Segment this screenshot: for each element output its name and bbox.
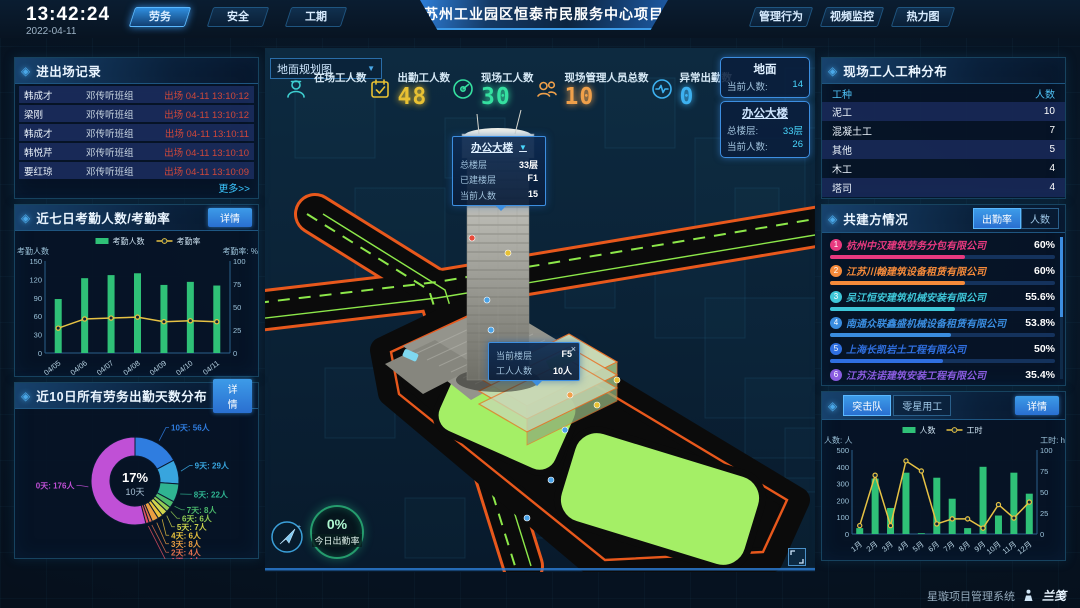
brand-logo: 兰笺 [1042,587,1066,604]
svg-text:10天: 10天 [125,487,144,497]
svg-text:5天: 7人: 5天: 7人 [177,522,208,532]
svg-text:04/05: 04/05 [42,358,62,377]
exit-event: 出场 04-11 13:10:09 [164,164,249,178]
today-attendance-gauge: 0% 今日出勤率 [310,505,364,559]
gauge-icon [450,76,476,109]
squad-tab-1[interactable]: 突击队 [843,395,891,416]
tab-label: 热力图 [894,7,952,27]
people-icon [534,76,560,109]
svg-text:0: 0 [38,349,42,358]
partner-row[interactable]: 6江苏法诺建筑安装工程有限公司35.4% [830,367,1055,386]
tooltip-row: 总楼层33层 [460,158,538,171]
panel-days-distribution: ◈ 近10日所有劳务出勤天数分布 详情 10天: 56人9天: 29人8天: 2… [14,382,259,559]
svg-text:120: 120 [29,275,42,284]
rank-badge: 4 [830,317,842,329]
worker-table-header: 工种人数 [822,84,1065,102]
worker-name: 要红琼 [24,164,86,178]
tab-right-3[interactable]: 热力图 [894,7,952,27]
detail-button[interactable]: 详情 [1015,396,1059,415]
worker-name: 韩成才 [24,126,86,140]
svg-text:2月: 2月 [865,539,880,553]
stat-label: 现场工人数 [481,70,534,85]
svg-text:4月: 4月 [895,539,910,553]
tooltip-row: 已建楼层F1 [460,173,538,186]
stat-value: 30 [481,85,534,109]
svg-text:8天: 22人: 8天: 22人 [194,489,229,499]
svg-text:考勤人数: 考勤人数 [17,246,49,256]
partner-row[interactable]: 2江苏川翰建筑设备租赁有限公司60% [830,263,1055,285]
footer: 星璇项目管理系统 兰笺 [927,587,1066,604]
tooltip-row: 当前人数15 [460,189,538,202]
svg-text:1月: 1月 [849,539,864,553]
detail-button[interactable]: 详情 [208,208,252,227]
entry-exit-row: 韩成才邓传听班组出场 04-11 13:10:11 [19,124,254,141]
team-name: 邓传听班组 [86,107,164,121]
worker-type-row: 其他5 [822,140,1065,159]
team-name: 邓传听班组 [86,164,164,178]
svg-text:0: 0 [1040,530,1044,539]
svg-text:工时: h: 工时: h [1040,435,1065,445]
svg-text:60: 60 [34,312,42,321]
area-panel-row: 当前人数:26 [727,139,803,153]
pulse-icon [649,76,675,109]
stats-row: 在场工人数出勤工人数48现场工人数30现场管理人员总数10异常出勤数0 [283,70,715,109]
worker-count: 4 [995,163,1055,174]
svg-text:04/10: 04/10 [174,358,194,377]
svg-text:150: 150 [29,257,42,266]
team-name: 邓传听班组 [86,126,165,140]
progress-fill [830,307,955,311]
diamond-icon: ◈ [828,399,837,413]
stat-gauge: 现场工人数30 [450,70,534,109]
diamond-icon: ◈ [828,64,837,78]
panel-title: 进出场记录 [36,61,101,80]
panel-worker-types: ◈ 现场工人工种分布 工种人数 泥工10混凝土工7其他5木工4塔司4 [821,57,1066,199]
svg-text:10天: 56人: 10天: 56人 [171,422,211,432]
days-distribution-donut: 10天: 56人9天: 29人8天: 22人7天: 8人6天: 6人5天: 7人… [15,409,260,559]
building-tooltip: 办公大楼▼ 总楼层33层已建楼层F1当前人数15 [452,136,546,206]
area-panel-row: 总楼层:33层 [727,123,803,137]
svg-text:考勤人数: 考勤人数 [113,236,145,246]
gauge-label: 今日出勤率 [312,534,362,547]
svg-text:50: 50 [1040,488,1048,497]
calendar-icon [367,76,393,109]
partner-name: 江苏法诺建筑安装工程有限公司 [846,367,1017,382]
worker-name: 韩悦芹 [24,145,86,159]
exit-event: 出场 04-11 13:10:12 [164,107,249,121]
svg-text:100: 100 [1040,446,1053,455]
compass-icon[interactable]: + [268,518,306,556]
svg-text:工时: 工时 [967,425,983,435]
area-panel-title: 地面 [727,61,803,77]
worker-count: 5 [995,144,1055,155]
partner-row[interactable]: 1杭州中汉建筑劳务分包有限公司60% [830,237,1055,259]
svg-text:17%: 17% [122,470,148,485]
svg-text:1天: 4人: 1天: 4人 [171,556,202,559]
stat-people: 现场管理人员总数10 [534,70,649,109]
squad-tab-2[interactable]: 零星用工 [893,395,951,416]
brand-icon [1023,589,1034,602]
partner-tabs: 出勤率人数 [973,208,1059,229]
panel-squad: ◈ 突击队零星用工 详情 01002003004005000255075100人… [821,391,1066,561]
page-title: 苏州工业园区恒泰市民服务中心项目 [420,0,668,30]
worker-type: 混凝土工 [832,123,995,138]
partner-percent: 53.8% [1025,317,1055,329]
tab-label: 安全 [210,7,266,27]
svg-text:0: 0 [233,349,237,358]
panel-partners: ◈ 共建方情况 出勤率人数 1杭州中汉建筑劳务分包有限公司60%2江苏川翰建筑设… [821,204,1066,386]
worker-type-row: 混凝土工7 [822,121,1065,140]
entry-exit-list: 韩成才邓传听班组出场 04-11 13:10:12梁刚邓传听班组出场 04-11… [15,86,258,179]
svg-text:6天: 6人: 6天: 6人 [182,513,213,523]
system-name: 星璇项目管理系统 [927,588,1015,604]
team-name: 邓传听班组 [86,88,164,102]
tooltip-row: 当前楼层F5 [496,349,572,362]
svg-text:04/09: 04/09 [148,358,168,377]
svg-text:人数: 人: 人数: 人 [824,435,852,445]
svg-text:4天: 6人: 4天: 6人 [171,530,202,540]
gauge-value: 0% [312,516,362,532]
partner-percent: 35.4% [1025,369,1055,381]
panel-title: 共建方情况 [843,209,908,228]
rank-badge: 6 [830,369,842,381]
svg-text:75: 75 [233,280,241,289]
progress-track [830,333,1055,337]
partner-percent: 60% [1034,265,1055,277]
entry-exit-row: 韩悦芹邓传听班组出场 04-11 13:10:10 [19,143,254,160]
stat-label: 出勤工人数 [398,70,451,85]
panel-attendance7: ◈ 近七日考勤人数/考勤率 详情 03060901201500255075100… [14,204,259,377]
partner-percent: 55.6% [1025,291,1055,303]
svg-text:8月: 8月 [957,539,972,553]
team-name: 邓传听班组 [86,145,164,159]
rank-badge: 2 [830,265,842,277]
svg-text:+: + [297,524,301,531]
exit-event: 出场 04-11 13:10:11 [165,126,249,140]
progress-fill [830,281,965,285]
partner-row[interactable]: 5上海长凯岩土工程有限公司50% [830,341,1055,363]
rank-badge: 3 [830,291,842,303]
floor-tooltip: × 当前楼层F5工人人数10人 [488,342,580,381]
squad-chart: 01002003004005000255075100人数: 人工时: h人数工时… [822,420,1067,558]
svg-text:9月: 9月 [973,539,988,553]
svg-text:100: 100 [233,257,246,266]
tab-label: 管理行为 [752,7,810,27]
diamond-icon: ◈ [828,212,837,226]
partner-percent: 60% [1034,239,1055,251]
clock: 13:42:24 2022-04-11 [26,4,110,37]
close-icon[interactable]: × [571,345,576,354]
svg-text:5月: 5月 [911,539,926,553]
topbar: 13:42:24 2022-04-11 劳务安全工期 苏州工业园区恒泰市民服务中… [0,0,1080,38]
svg-text:25: 25 [233,326,241,335]
svg-text:04/07: 04/07 [95,358,115,377]
dashboard-root: 13:42:24 2022-04-11 劳务安全工期 苏州工业园区恒泰市民服务中… [0,0,1080,608]
svg-text:11月: 11月 [1001,539,1019,556]
attendance-chart: 03060901201500255075100考勤人数考勤率: %考勤人数考勤率… [15,231,260,377]
partner-row[interactable]: 3吴江恒安建筑机械安装有限公司55.6% [830,289,1055,311]
rank-badge: 1 [830,239,842,251]
svg-text:100: 100 [836,513,849,522]
svg-text:90: 90 [34,294,42,303]
stat-label: 在场工人数 [314,70,367,85]
worker-type-row: 木工4 [822,159,1065,178]
progress-track [830,307,1055,311]
worker-count: 10 [995,106,1055,117]
svg-text:12月: 12月 [1015,539,1033,556]
chevron-down-icon: ▼ [519,143,527,152]
svg-text:300: 300 [836,480,849,489]
worker-count: 7 [995,125,1055,136]
svg-text:25: 25 [1040,509,1048,518]
stat-calendar: 出勤工人数48 [367,70,451,109]
panel-title: 现场工人工种分布 [843,61,947,80]
exit-event: 出场 04-11 13:10:12 [164,88,249,102]
scrollbar[interactable] [1060,237,1063,379]
worker-type-row: 塔司4 [822,178,1065,197]
detail-button[interactable]: 详情 [213,379,252,413]
svg-text:7天: 8人: 7天: 8人 [187,505,218,515]
tab-label: 劳务 [132,7,188,27]
entry-exit-row: 梁刚邓传听班组出场 04-11 13:10:12 [19,105,254,122]
entry-exit-row: 韩成才邓传听班组出场 04-11 13:10:12 [19,86,254,103]
worker-count: 4 [995,182,1055,193]
worker-type: 其他 [832,142,995,157]
squad-tabs: 突击队零星用工 [843,395,951,416]
area-panel-title[interactable]: 办公大楼 [727,105,803,121]
tab-right-1[interactable]: 管理行为 [752,7,810,27]
worker-table: 泥工10混凝土工7其他5木工4塔司4 [822,102,1065,197]
partner-name: 江苏川翰建筑设备租赁有限公司 [846,263,1026,278]
progress-track [830,281,1055,285]
diamond-icon: ◈ [21,211,30,225]
diamond-icon: ◈ [21,389,30,403]
progress-track [830,255,1055,259]
progress-track [830,359,1055,363]
progress-fill [830,359,943,363]
partner-name: 吴江恒安建筑机械安装有限公司 [846,289,1017,304]
worker-type: 木工 [832,161,995,176]
diamond-icon: ◈ [21,64,30,78]
panel-entry-exit: ◈ 进出场记录 韩成才邓传听班组出场 04-11 13:10:12梁刚邓传听班组… [14,57,259,199]
tab-label: 工期 [288,7,344,27]
progress-fill [830,255,965,259]
svg-text:50: 50 [233,303,241,312]
partner-name: 南通众联鑫盛机械设备租赁有限公司 [846,315,1017,330]
svg-text:400: 400 [836,463,849,472]
partner-percent: 50% [1034,343,1055,355]
svg-text:6月: 6月 [926,539,941,553]
progress-fill [830,333,951,337]
progress-fill [830,385,910,386]
svg-text:500: 500 [836,446,849,455]
svg-text:人数: 人数 [920,425,936,435]
area-panel-ground: 地面当前人数:14 [720,57,810,98]
svg-text:2天: 4人: 2天: 4人 [171,547,202,557]
building-tooltip-title[interactable]: 办公大楼▼ [460,140,538,155]
svg-text:9天: 29人: 9天: 29人 [195,461,230,471]
worker-name: 梁刚 [24,107,86,121]
svg-text:3天: 8人: 3天: 8人 [171,539,202,549]
tooltip-row: 工人人数10人 [496,364,572,377]
svg-text:30: 30 [34,331,42,340]
more-link[interactable]: 更多>> [218,180,250,195]
partner-tab-1[interactable]: 出勤率 [973,208,1021,229]
stat-value: 48 [398,85,451,109]
area-panel-row: 当前人数:14 [727,79,803,93]
tab-label: 视频监控 [823,7,881,27]
tab-left-1[interactable]: 劳务 [132,7,188,27]
clock-date: 2022-04-11 [26,26,110,37]
svg-text:04/11: 04/11 [201,358,221,376]
worker-name: 韩成才 [24,88,86,102]
worker-type-row: 泥工10 [822,102,1065,121]
partner-name: 上海长凯岩土工程有限公司 [846,341,1026,356]
progress-track [830,385,1055,386]
svg-text:7月: 7月 [942,539,957,553]
panel-title: 近10日所有劳务出勤天数分布 [36,386,207,405]
svg-text:考勤率: 考勤率 [177,236,201,246]
partner-list: 1杭州中汉建筑劳务分包有限公司60%2江苏川翰建筑设备租赁有限公司60%3吴江恒… [822,237,1065,386]
fullscreen-icon[interactable] [788,548,806,566]
clock-time: 13:42:24 [26,4,110,26]
worker-type: 塔司 [832,180,995,195]
area-panel-building: 办公大楼总楼层:33层当前人数:26 [720,101,810,158]
svg-text:0天: 176人: 0天: 176人 [36,480,76,490]
svg-text:04/06: 04/06 [69,358,89,377]
svg-text:考勤率: %: 考勤率: % [222,246,258,256]
svg-text:04/08: 04/08 [121,358,141,377]
partner-row[interactable]: 4南通众联鑫盛机械设备租赁有限公司53.8% [830,315,1055,337]
tab-left-3[interactable]: 工期 [288,7,344,27]
worker-type: 泥工 [832,104,995,119]
stat-label: 现场管理人员总数 [565,70,649,85]
stat-value: 10 [565,85,649,109]
svg-text:3月: 3月 [880,539,895,553]
tab-left-2[interactable]: 安全 [210,7,266,27]
svg-text:10月: 10月 [985,539,1003,556]
rank-badge: 5 [830,343,842,355]
worker-icon [283,76,309,109]
partner-name: 杭州中汉建筑劳务分包有限公司 [846,237,1026,252]
svg-text:0: 0 [845,530,849,539]
exit-event: 出场 04-11 13:10:10 [164,145,249,159]
panel-title: 近七日考勤人数/考勤率 [36,208,170,227]
tab-right-2[interactable]: 视频监控 [823,7,881,27]
entry-exit-row: 要红琼邓传听班组出场 04-11 13:10:09 [19,162,254,179]
stat-worker: 在场工人数 [283,70,367,109]
svg-text:200: 200 [836,496,849,505]
partner-tab-2[interactable]: 人数 [1021,208,1059,229]
svg-text:75: 75 [1040,467,1048,476]
